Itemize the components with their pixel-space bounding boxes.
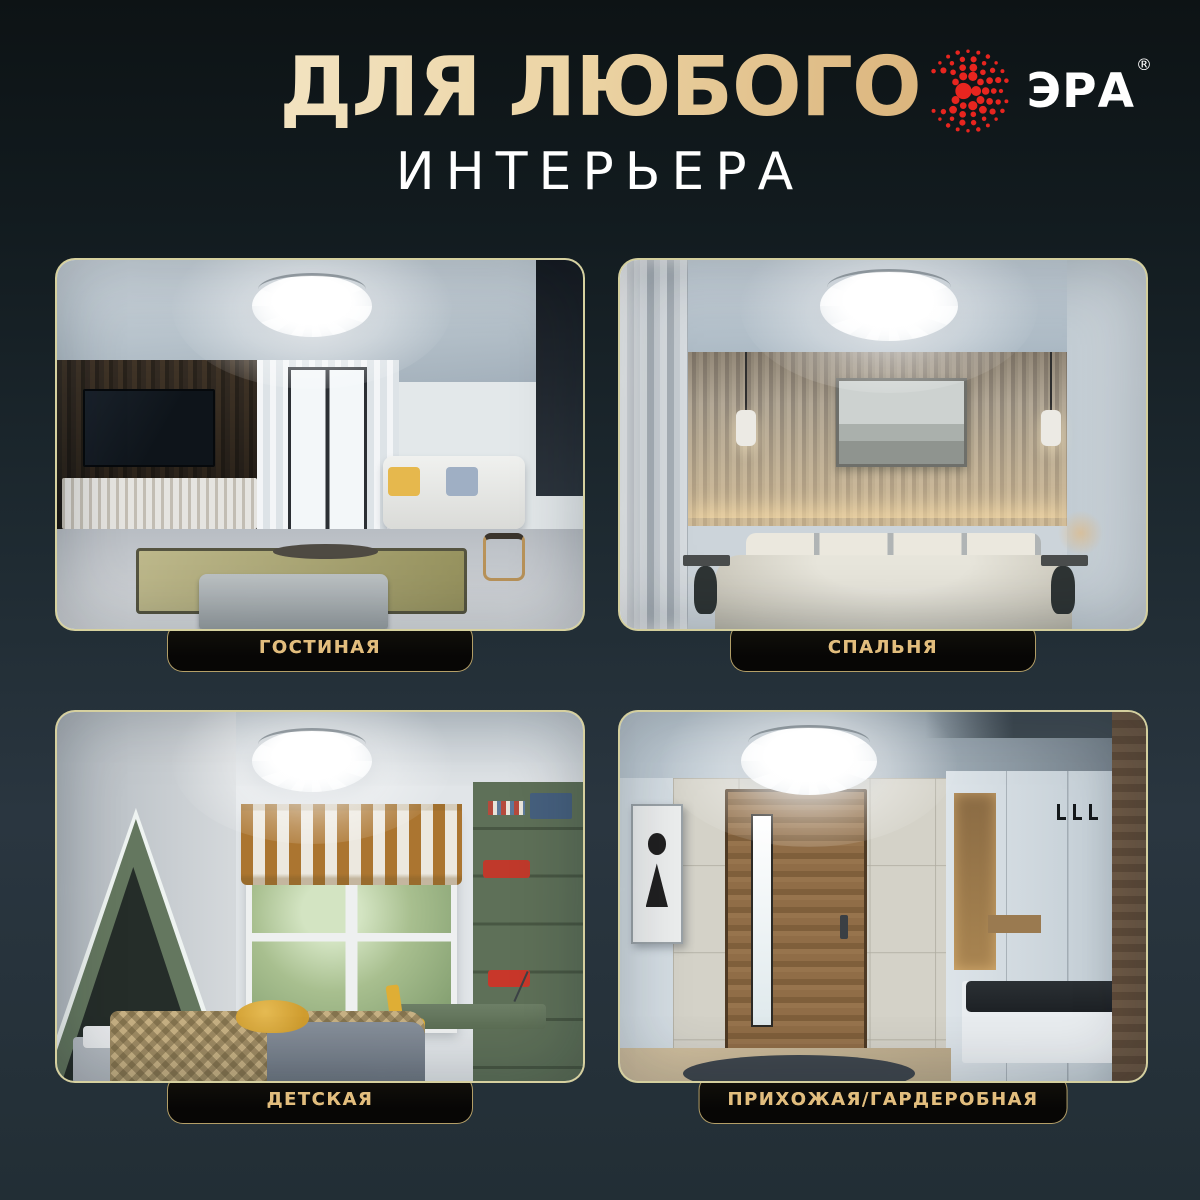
room-card-bedroom: СПАЛЬНЯ bbox=[618, 258, 1148, 672]
bedroom-plant bbox=[1057, 511, 1104, 555]
living-glass-partition bbox=[536, 260, 583, 496]
hallway-wall-art bbox=[631, 804, 684, 944]
room-card-living: ГОСТИНАЯ bbox=[55, 258, 585, 672]
ceiling-lamp-icon bbox=[741, 727, 877, 795]
brand-name-text: ЭРА bbox=[1027, 64, 1135, 119]
hallway-niche-wood bbox=[954, 793, 996, 970]
room-label-text: ДЕТСКАЯ bbox=[267, 1089, 374, 1110]
bedroom-nightstand-left bbox=[683, 555, 730, 566]
living-pillow-yellow bbox=[388, 467, 420, 497]
pendant-cord bbox=[1050, 352, 1052, 410]
art-cone-shape bbox=[646, 863, 668, 907]
ceiling-lamp-icon bbox=[252, 730, 372, 792]
kids-pillow-yellow bbox=[236, 1000, 310, 1033]
bedroom-vase-left bbox=[694, 566, 718, 614]
living-tv bbox=[83, 389, 215, 466]
ceiling-lamp-icon bbox=[820, 271, 958, 341]
coat-hook-icon bbox=[1073, 804, 1082, 820]
room-card-hallway: ПРИХОЖАЯ/ГАРДЕРОБНАЯ bbox=[618, 710, 1148, 1124]
era-logo-icon bbox=[921, 44, 1015, 138]
art-circle-shape bbox=[648, 833, 666, 855]
living-pillow-blue bbox=[446, 467, 478, 497]
room-photo-bedroom bbox=[618, 258, 1148, 631]
bedroom-bed bbox=[715, 555, 1073, 629]
kids-storage-box-blue bbox=[530, 793, 572, 819]
hallway-rug bbox=[683, 1055, 914, 1083]
coat-hook-icon bbox=[1057, 804, 1066, 820]
room-photo-hallway bbox=[618, 710, 1148, 1083]
living-window bbox=[288, 367, 367, 533]
room-card-kids: ДЕТСКАЯ bbox=[55, 710, 585, 1124]
kids-toy-truck-red bbox=[483, 860, 530, 878]
rooms-grid: ГОСТИНАЯ bbox=[55, 258, 1148, 1124]
pendant-shade bbox=[736, 410, 756, 446]
room-label-text: ПРИХОЖАЯ/ГАРДЕРОБНАЯ bbox=[728, 1089, 1039, 1110]
room-photo-living bbox=[55, 258, 585, 631]
door-glass-strip bbox=[751, 814, 773, 1028]
pendant-shade bbox=[1041, 410, 1061, 446]
living-sideboard bbox=[62, 478, 257, 530]
door-handle bbox=[840, 915, 848, 939]
kids-shelving-unit bbox=[473, 782, 583, 1081]
room-label-text: ГОСТИНАЯ bbox=[259, 637, 381, 658]
pendant-lamp-left bbox=[736, 352, 756, 446]
hallway-wood-column bbox=[1112, 712, 1146, 1081]
pendant-lamp-right bbox=[1041, 352, 1061, 446]
promo-poster: ДЛЯ ЛЮБОГО ИНТЕРЬЕРА ЭРА® bbox=[0, 0, 1200, 1200]
brand-logo: ЭРА® bbox=[921, 44, 1152, 138]
living-side-table bbox=[483, 533, 525, 581]
bedroom-curtain bbox=[620, 260, 688, 629]
kids-books bbox=[488, 801, 525, 816]
living-ottoman bbox=[199, 574, 388, 629]
title-line-2: ИНТЕРЬЕРА bbox=[0, 142, 1200, 202]
bedroom-vase-right bbox=[1051, 566, 1075, 614]
pendant-cord bbox=[745, 352, 747, 410]
bedroom-nightstand-right bbox=[1041, 555, 1088, 566]
registered-mark: ® bbox=[1136, 55, 1153, 74]
living-coffee-table bbox=[273, 544, 378, 559]
room-photo-kids bbox=[55, 710, 585, 1083]
room-label-text: СПАЛЬНЯ bbox=[828, 637, 938, 658]
brand-name: ЭРА® bbox=[1027, 64, 1152, 119]
bedroom-right-wall bbox=[1067, 260, 1146, 629]
coat-hook-icon bbox=[1089, 804, 1098, 820]
ceiling-lamp-icon bbox=[252, 275, 372, 337]
hallway-wood-shelf bbox=[988, 915, 1041, 933]
